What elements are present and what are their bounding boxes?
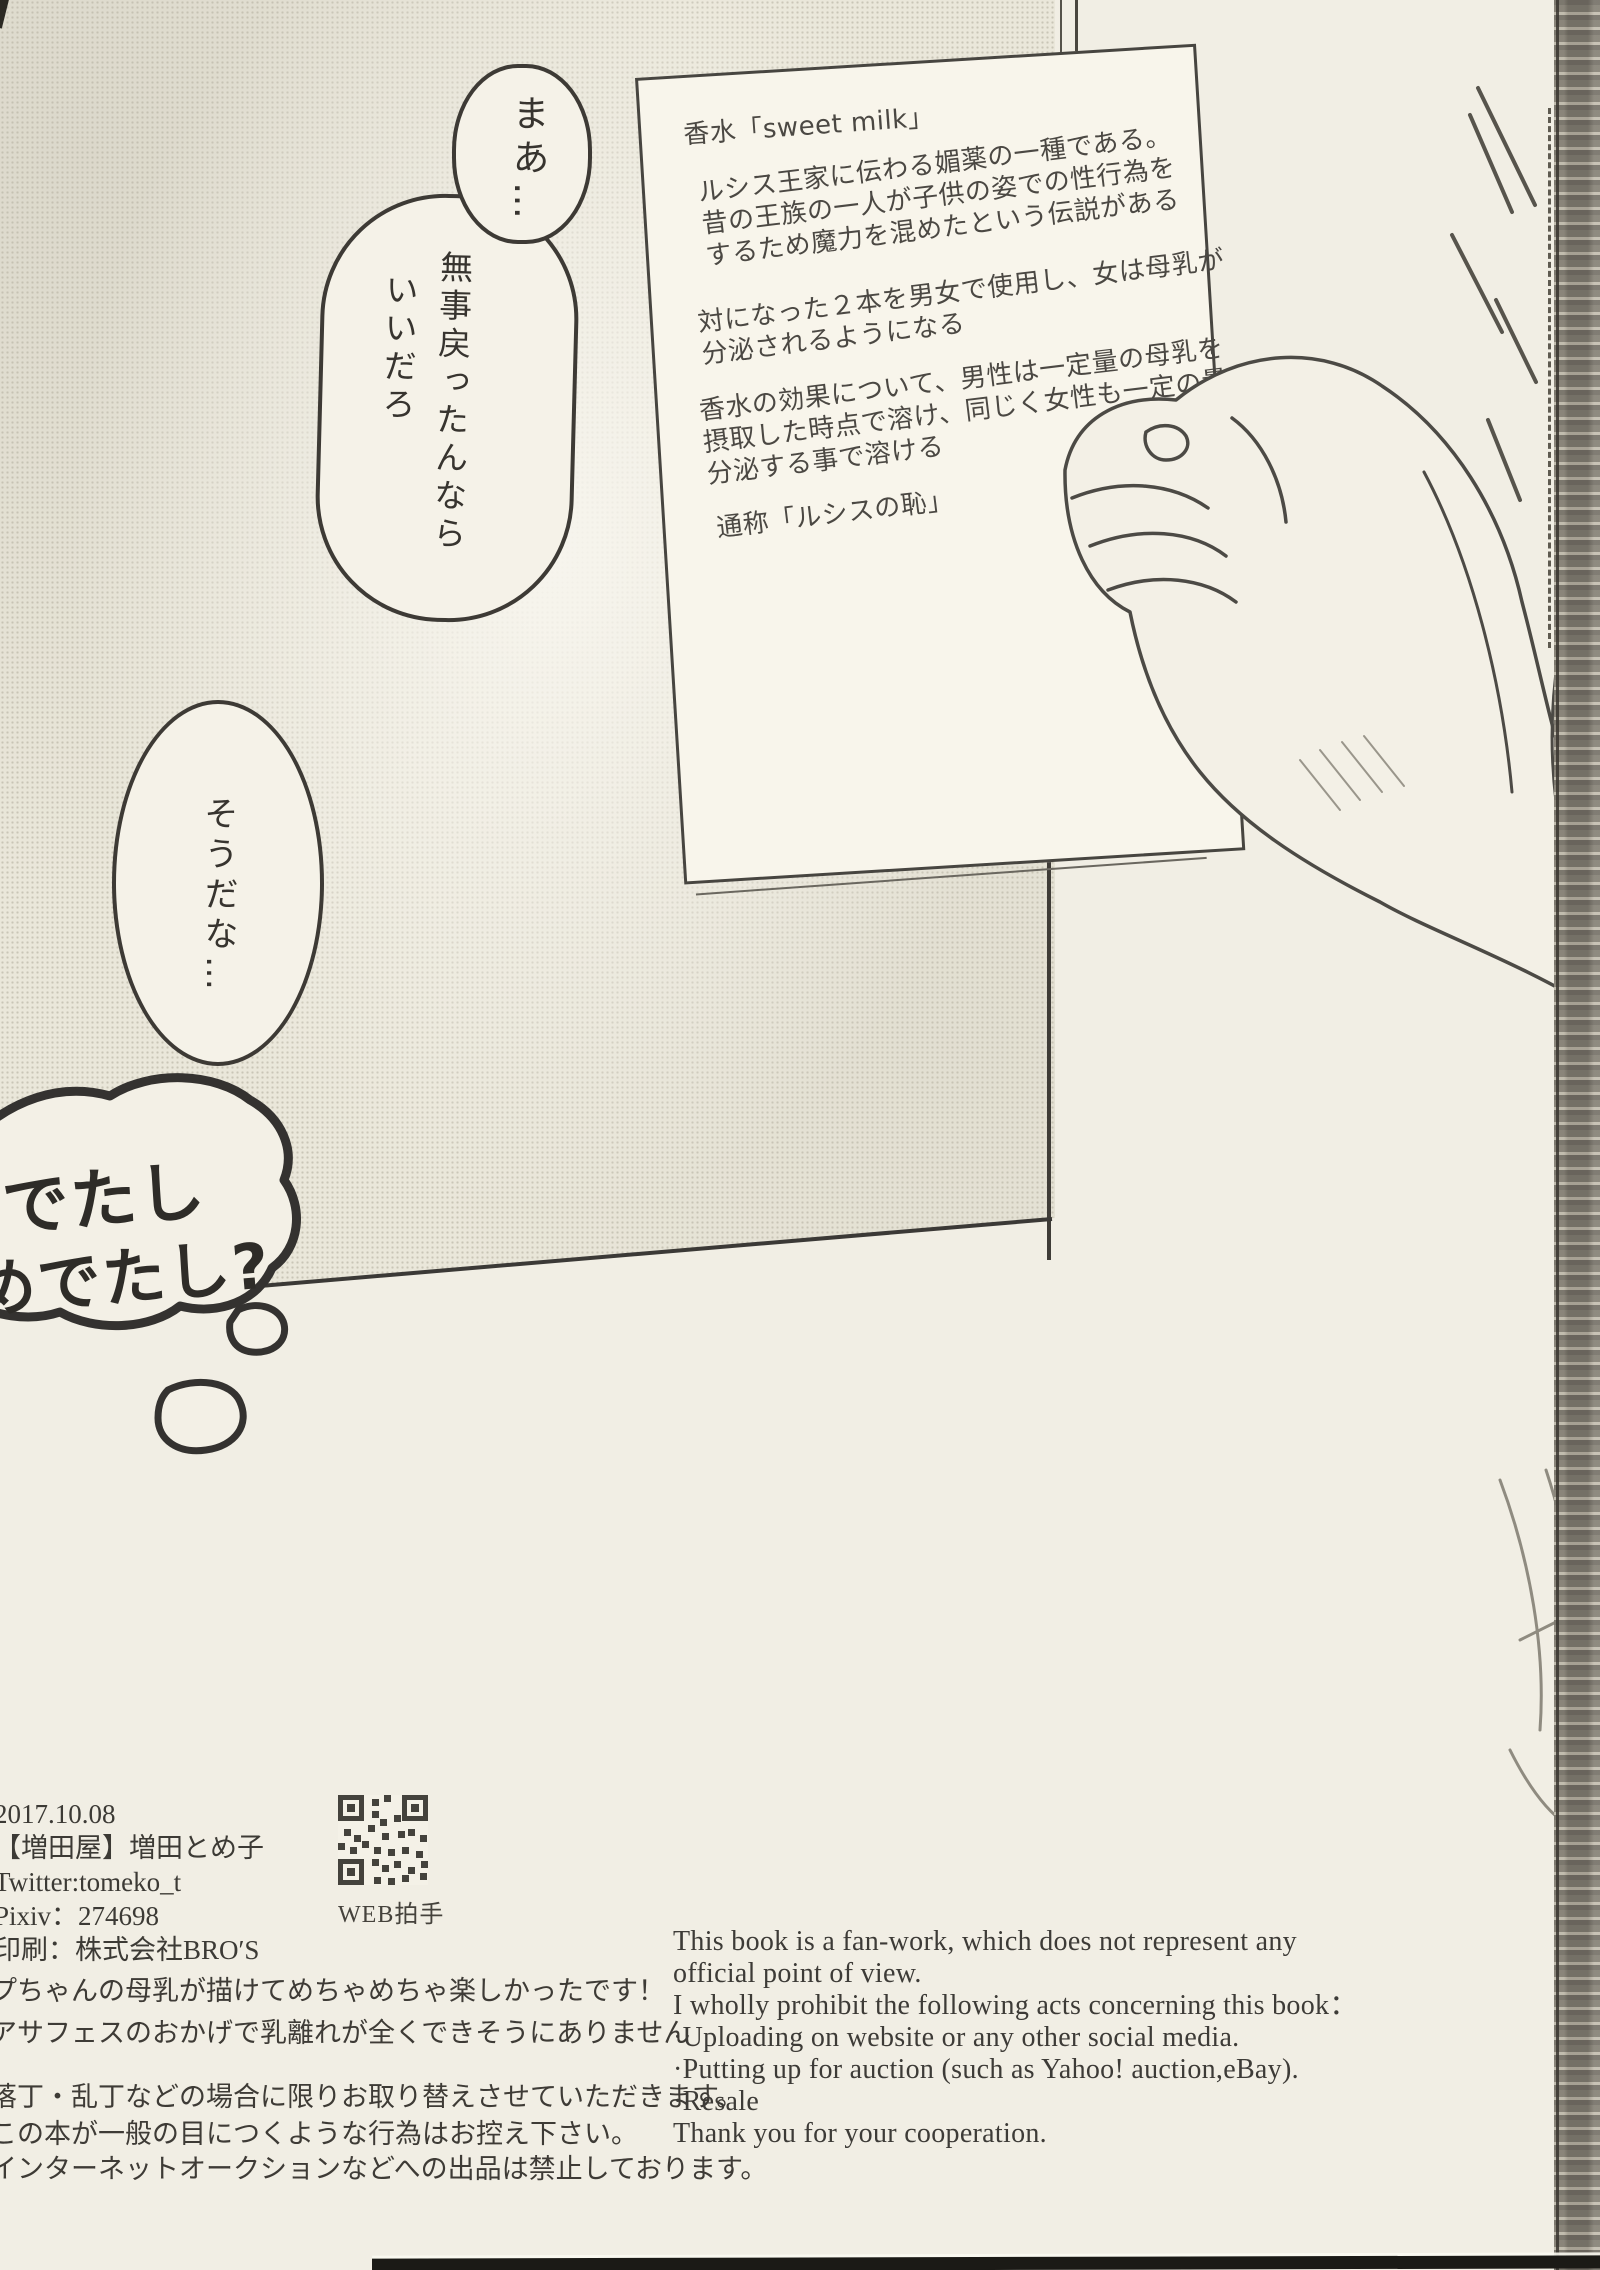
scan-bottom-edge — [372, 2255, 1600, 2270]
binding-tick-marks — [1548, 108, 1551, 648]
speech-bubble-maa: まあ… — [452, 64, 592, 244]
colophon-author: 【増田屋】増田とめ子 — [0, 1831, 264, 1865]
notice-en: This book is a fan-work, which does not … — [673, 1926, 1358, 2150]
speech-text: まあ… — [500, 94, 554, 226]
colophon-twitter: Twitter:tomeko_t — [0, 1865, 264, 1899]
colophon-printing: 印刷：株式会社BRO′S — [0, 1933, 264, 1967]
speech-text: そうだな… — [194, 796, 243, 996]
notice-line: ·Putting up for auction (such as Yahoo! … — [673, 2054, 1358, 2086]
speech-bubble-main: 無事戻ったんなら いいだろ — [312, 191, 581, 626]
afterword-line: インターネットオークションなどへの出品は禁止しております。 — [0, 2154, 767, 2184]
note-paragraph-alias: 通称「ルシスの恥」 — [715, 484, 956, 544]
colophon-pixiv: Pixiv：274698 — [0, 1899, 264, 1933]
speech-text: いいだろ — [372, 272, 424, 425]
notice-line: ·Resale — [673, 2086, 1358, 2118]
note-line: 通称「ルシスの恥」 — [715, 484, 956, 544]
scan-binding-edge — [1554, 0, 1600, 2270]
notice-line: I wholly prohibit the following acts con… — [673, 1990, 1358, 2022]
afterword-line: アサフェスのおかげで乳離れが全くできそうにありません — [0, 2018, 767, 2048]
notice-line: This book is a fan-work, which does not … — [673, 1926, 1358, 1958]
notice-line: Thank you for your cooperation. — [673, 2118, 1358, 2150]
note-paper: 香水「sweet milk」 ルシス王家に伝わる媚薬の一種である。 昔の王族の一… — [635, 44, 1245, 885]
afterword-line: プちゃんの母乳が描けてめちゃめちゃ楽しかったです！ — [0, 1976, 767, 2006]
page-bleed-sketch-top — [1452, 88, 1536, 500]
sleeve-line — [1424, 472, 1512, 792]
web-clap-block: WEB拍手 — [338, 1795, 444, 1929]
thought-trail-blob — [158, 1382, 243, 1450]
notice-line: ·Uploading on website or any other socia… — [673, 2022, 1358, 2054]
thought-trail-blob — [230, 1306, 285, 1353]
manga-page-scan: 香水「sweet milk」 ルシス王家に伝わる媚薬の一種である。 昔の王族の一… — [0, 0, 1600, 2270]
knuckle-line — [1232, 418, 1286, 522]
colophon-date: 2017.10.08 — [0, 1797, 264, 1831]
speech-text: 無事戻ったんなら — [422, 250, 478, 555]
afterword-jp: プちゃんの母乳が描けてめちゃめちゃ楽しかったです！ アサフェスのおかげで乳離れが… — [0, 1976, 767, 2184]
qr-code — [338, 1795, 428, 1885]
afterword-line: 落丁・乱丁などの場合に限りお取り替えさせていただきます。 — [0, 2082, 767, 2112]
note-title: 香水「sweet milk」 — [682, 102, 935, 152]
notice-line: official point of view. — [673, 1958, 1358, 1990]
speech-bubble-souda: そうだな… — [112, 700, 324, 1066]
colophon: 2017.10.08 【増田屋】増田とめ子 Twitter:tomeko_t P… — [0, 1797, 264, 1967]
hand-hatching — [1300, 736, 1404, 810]
qr-label: WEB拍手 — [338, 1894, 444, 1929]
afterword-line: この本が一般の目につくような行為はお控え下さい。 — [0, 2119, 767, 2149]
